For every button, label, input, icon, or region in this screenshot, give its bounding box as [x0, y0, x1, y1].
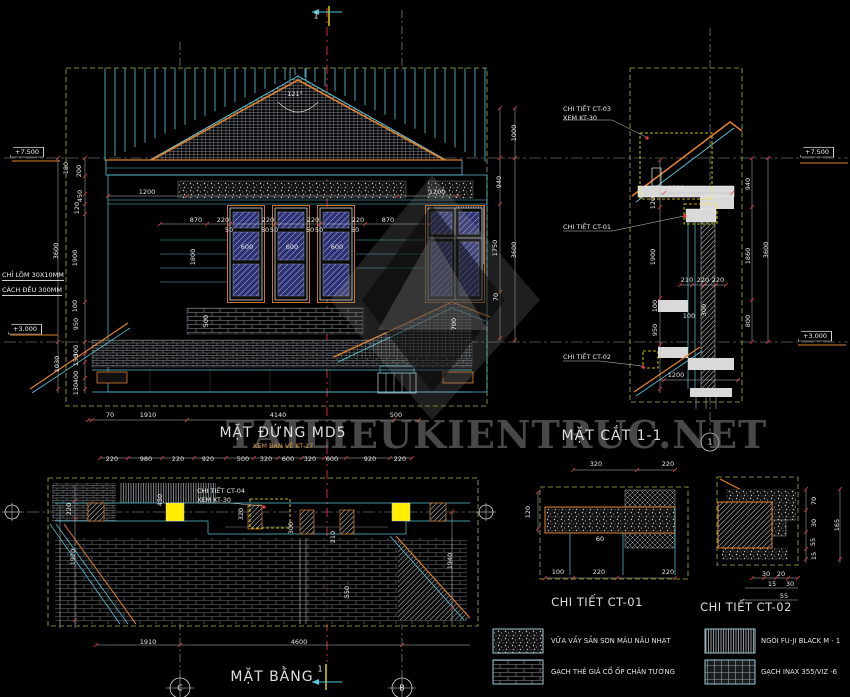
dim-label: 320	[260, 456, 272, 463]
legend-label: NGÓI FU-JI BLACK M - 1	[761, 637, 840, 645]
dim-label: 150	[73, 354, 80, 366]
cad-drawing-sheet: TAILIEUKIENTRUC.NET +7.500 +3.000 +7.500…	[0, 0, 850, 697]
dim-label: 1910	[140, 639, 157, 646]
dim-label: 70	[811, 497, 818, 505]
dim-label: 940	[745, 178, 752, 190]
side-note: CÁCH ĐỀU 300MM	[2, 287, 62, 296]
dim-label: 1900	[650, 249, 657, 266]
dim-label: 100	[552, 569, 564, 576]
dim-label: 870	[190, 217, 202, 224]
dim-label: 800	[745, 315, 752, 327]
grid-bubble-label: C	[177, 684, 183, 693]
dim-label: 950	[73, 318, 80, 330]
dim-label: 30	[762, 571, 770, 578]
dim-label: 1860	[745, 248, 752, 265]
dim-label: 600	[331, 244, 343, 251]
callout-label: XEM KT-30	[563, 115, 597, 122]
callout-label: CHI TIẾT CT-04	[197, 488, 245, 495]
dim-label: 1200	[668, 185, 685, 192]
section-marker-label: 1	[313, 12, 318, 21]
dim-label: 100	[683, 313, 695, 320]
dim-label: 50	[225, 227, 233, 234]
dim-label: 920	[202, 456, 214, 463]
dim-label: 320	[304, 456, 316, 463]
dim-label: 120	[650, 197, 657, 209]
callout-leaders	[563, 120, 684, 366]
dim-label: 15	[811, 552, 818, 560]
dim-label: 600	[282, 456, 294, 463]
dim-label: 1800	[190, 249, 197, 266]
level-flag: +3.000	[798, 331, 832, 342]
dim-label: 100	[652, 300, 659, 312]
dim-label: 950	[652, 324, 659, 336]
dim-label: 320	[590, 461, 602, 468]
dim-label: 4140	[270, 412, 287, 419]
dim-label: 220	[712, 277, 724, 284]
dim-label: 220	[66, 503, 73, 515]
dim-label: 550	[344, 586, 351, 598]
dim-label: 220	[697, 277, 709, 284]
dim-label: 1920	[70, 549, 77, 566]
dim-label: 1900	[72, 250, 79, 267]
dim-label: 220	[352, 217, 364, 224]
dim-label: 165	[834, 519, 841, 531]
detail-ct01-drawing	[536, 468, 688, 580]
dim-label: 600	[326, 456, 338, 463]
dim-label: 300	[701, 304, 708, 316]
dim-label: 55	[810, 538, 817, 546]
callout-label: CHI TIẾT CT-03	[563, 106, 611, 113]
detail-title: CHI TIẾT CT-02	[700, 600, 792, 614]
grid-bubble-label: 1	[707, 438, 712, 447]
section-title: MẶT CẮT 1-1	[562, 428, 663, 444]
dim-label: 500	[237, 456, 249, 463]
dim-label: 220	[172, 456, 184, 463]
callout-label: XEM KT-30	[197, 497, 231, 504]
dim-label: 180	[63, 162, 70, 174]
elevation-window	[228, 206, 265, 303]
dim-label: 120	[74, 202, 81, 214]
dim-label: 500	[390, 412, 402, 419]
dim-label: 3600	[511, 242, 518, 259]
dim-label: 700	[451, 318, 458, 330]
dim-label: 220	[662, 461, 674, 468]
dim-label: 500	[203, 315, 210, 327]
side-note: CHỈ LÕM 30X10MM	[2, 272, 64, 281]
plan-title: MẶT BẰNG	[230, 669, 313, 685]
section-marker-label: 1	[317, 665, 322, 674]
dim-label: 70	[106, 412, 114, 419]
dim-label: 55	[780, 593, 788, 600]
dim-label: 130	[73, 383, 80, 395]
dim-label: 50	[315, 227, 323, 234]
dim-label: 450	[77, 190, 84, 202]
dim-label: 70	[493, 293, 500, 301]
dim-label: 4600	[291, 639, 308, 646]
dim-label: 1940	[447, 553, 454, 570]
dim-label: 1030	[54, 356, 61, 373]
dim-label: 1750	[492, 240, 499, 257]
dim-label: 1000	[511, 125, 518, 142]
dim-label: 1200	[139, 189, 156, 196]
dim-label: 220	[262, 217, 274, 224]
section-drawing	[563, 68, 770, 451]
callout-label: CHI TIẾT CT-01	[563, 224, 611, 231]
legend-label: VỮA VẨY SẦN SON MÀU NÂU NHẠT	[551, 637, 671, 645]
angle-label: 121°	[287, 91, 303, 98]
grid-bubble-label: B	[399, 684, 405, 693]
dim-label: 3600	[53, 243, 60, 260]
dim-label: 50	[261, 227, 269, 234]
elevation-subtitle: XEM BẢN VẼ KT-17	[253, 442, 313, 450]
elevation-title: MẶT ĐỨNG MD5	[219, 425, 346, 441]
callout-label: CHI TIẾT CT-02	[563, 354, 611, 361]
dim-label: 980	[140, 456, 152, 463]
dim-label: 210	[681, 277, 693, 284]
dim-label: 120	[525, 506, 532, 518]
dim-label: 220	[593, 569, 605, 576]
dim-label: 920	[364, 456, 376, 463]
dim-label: 220	[106, 456, 118, 463]
level-flag: +7.500	[800, 147, 834, 158]
dim-label: 50	[306, 227, 314, 234]
dim-label: 220	[662, 569, 674, 576]
detail-title: CHI TIẾT CT-01	[551, 595, 643, 609]
dim-label: 400	[73, 371, 80, 383]
dim-label: 20	[777, 571, 785, 578]
dim-label: 210	[330, 531, 337, 543]
dim-label: 320	[238, 508, 245, 520]
dim-label: 940	[496, 176, 503, 188]
dim-label: 300	[288, 522, 295, 534]
dim-label: 30	[786, 581, 794, 588]
dim-label: 450	[157, 494, 164, 506]
detail-ct02-drawing	[717, 477, 842, 600]
dim-label: 30	[811, 519, 818, 527]
legend-label: GẠCH INAX 355/VIZ -6	[761, 668, 837, 676]
dim-label: 50	[270, 227, 278, 234]
legend-label: GẠCH THẺ GIẢ CỔ ỐP CHÂN TƯỜNG	[551, 668, 675, 676]
dim-label: 600	[286, 244, 298, 251]
level-flag: +7.500	[10, 147, 44, 158]
dim-label: 50	[351, 227, 359, 234]
dim-label: 3600	[763, 242, 770, 259]
dim-label: 1200	[668, 372, 685, 379]
dim-label: 100	[72, 300, 79, 312]
watermark-logo	[330, 175, 540, 420]
dim-label: 1910	[140, 412, 157, 419]
level-flag: +3.000	[8, 324, 42, 335]
dim-label: 200	[76, 165, 83, 177]
dim-label: 220	[217, 217, 229, 224]
dim-label: 220	[307, 217, 319, 224]
elevation-window	[273, 206, 310, 303]
dim-label: 870	[382, 217, 394, 224]
cad-linework	[0, 0, 850, 697]
dim-label: 60	[596, 536, 604, 543]
dim-label: 600	[241, 244, 253, 251]
dim-label: 15	[768, 581, 776, 588]
dim-label: 1200	[429, 189, 446, 196]
dim-label: 220	[394, 456, 406, 463]
